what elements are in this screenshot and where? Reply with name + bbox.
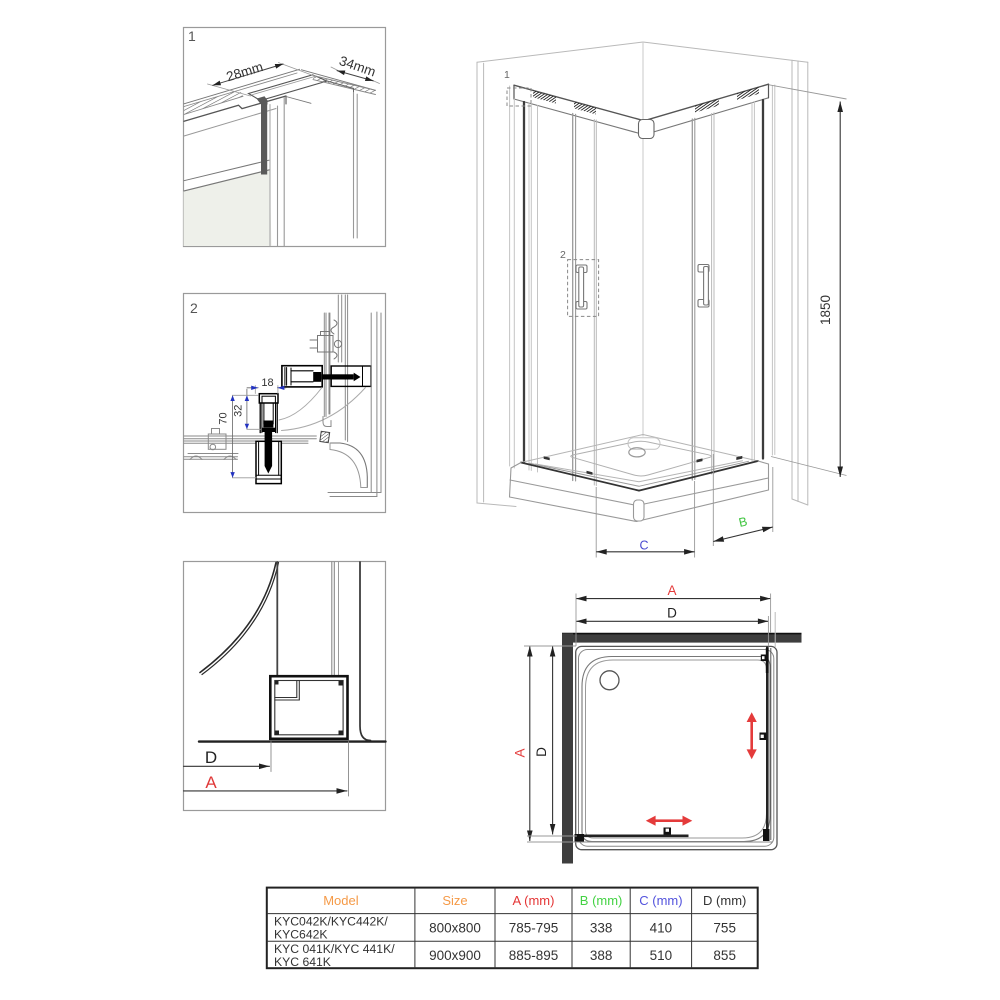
svg-text:755: 755 <box>713 921 736 936</box>
svg-text:1: 1 <box>504 69 510 81</box>
svg-text:KYC 641K: KYC 641K <box>274 955 331 969</box>
svg-text:18: 18 <box>261 377 273 389</box>
svg-text:32: 32 <box>233 405 245 417</box>
svg-text:1850: 1850 <box>818 295 833 325</box>
svg-text:C (mm): C (mm) <box>639 893 682 908</box>
svg-text:Model: Model <box>323 893 359 908</box>
svg-text:1: 1 <box>188 28 196 44</box>
svg-text:KYC042K/KYC442K/: KYC042K/KYC442K/ <box>274 915 388 929</box>
svg-text:785-795: 785-795 <box>509 921 559 936</box>
svg-text:800x800: 800x800 <box>429 921 481 936</box>
svg-text:B (mm): B (mm) <box>580 893 623 908</box>
svg-text:388: 388 <box>590 948 613 963</box>
svg-text:70: 70 <box>218 412 230 424</box>
svg-text:KYC 041K/KYC 441K/: KYC 041K/KYC 441K/ <box>274 942 395 956</box>
svg-text:A (mm): A (mm) <box>513 893 555 908</box>
svg-text:D (mm): D (mm) <box>703 893 746 908</box>
svg-text:510: 510 <box>650 948 673 963</box>
svg-text:KYC642K: KYC642K <box>274 928 328 942</box>
svg-text:D: D <box>534 747 549 757</box>
svg-text:900x900: 900x900 <box>429 948 481 963</box>
svg-text:410: 410 <box>650 921 673 936</box>
svg-text:C: C <box>639 539 648 553</box>
svg-text:2: 2 <box>190 300 198 316</box>
svg-text:855: 855 <box>713 948 736 963</box>
svg-text:2: 2 <box>560 249 566 261</box>
svg-text:338: 338 <box>590 921 613 936</box>
svg-text:D: D <box>667 606 677 621</box>
svg-text:Size: Size <box>442 893 467 908</box>
svg-text:A: A <box>205 773 217 792</box>
svg-text:A: A <box>513 748 528 757</box>
svg-text:D: D <box>205 748 217 767</box>
svg-text:A: A <box>667 583 676 598</box>
svg-text:885-895: 885-895 <box>509 948 559 963</box>
